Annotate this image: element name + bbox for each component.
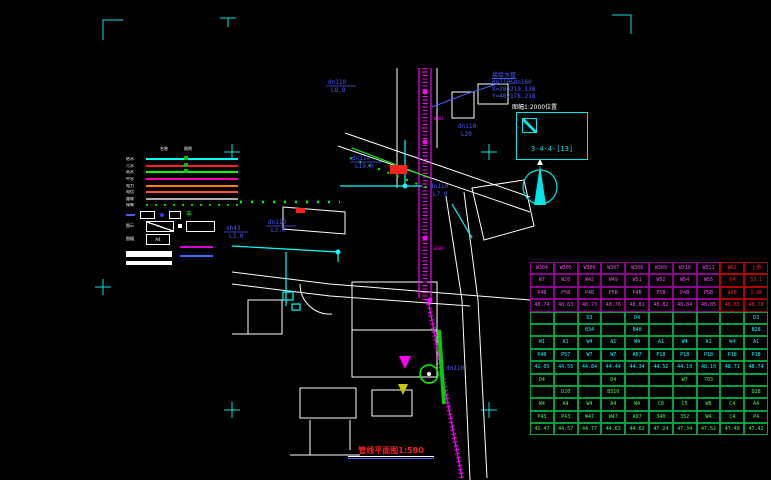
table-cell: 47.24 xyxy=(649,423,673,435)
table-cell: 703 xyxy=(697,374,721,386)
svg-text:W308: W308 xyxy=(434,246,444,251)
table-cell: W310 xyxy=(673,262,697,274)
parcel-outlines[interactable] xyxy=(232,84,534,455)
legend-line-blip xyxy=(184,156,188,160)
table-cell: P18 xyxy=(697,349,721,361)
table-cell: W4 xyxy=(673,336,697,348)
legend-row: 电信 xyxy=(126,189,246,196)
diag-label: 图示 xyxy=(126,223,142,229)
pipe-label: L20 xyxy=(461,131,472,138)
table-cell: W309 xyxy=(649,262,673,274)
legend-row-line[interactable] xyxy=(146,204,238,206)
legend-row: 雨水 xyxy=(126,169,246,176)
table-cell: W307 xyxy=(601,262,625,274)
table-cell: 41.47 xyxy=(530,423,554,435)
y-coordinate: Y=482178.218 xyxy=(492,93,535,100)
table-cell xyxy=(649,324,673,336)
table-cell: 48.84 xyxy=(673,299,697,311)
table-cell: 48.73 xyxy=(578,299,602,311)
table-cell: A1 xyxy=(601,336,625,348)
table-block: W304W305W306W307W308W309W310W311W62上游W7W… xyxy=(530,262,768,312)
table-cell: 48.74 xyxy=(744,361,768,373)
table-cell: P43 xyxy=(554,411,578,423)
pipe-label: L3.0 xyxy=(271,227,286,234)
legend-extra-lines xyxy=(180,246,213,257)
table-cell: W8 xyxy=(697,398,721,410)
table-cell: 48.10 xyxy=(697,361,721,373)
table-cell: D4 xyxy=(625,312,649,324)
table-cell: W305 xyxy=(554,262,578,274)
table-cell: D3 xyxy=(744,312,768,324)
table-cell: W4 xyxy=(625,336,649,348)
table-cell: W54 xyxy=(673,274,697,286)
table-cell: 44.34 xyxy=(625,361,649,373)
legend-row: 绿篱 xyxy=(126,202,246,209)
table-cell: 48.78 xyxy=(744,299,768,311)
a4-label: 图幅 xyxy=(126,236,142,242)
table-cell: 41.05 xyxy=(530,361,554,373)
table-cell: 47.52 xyxy=(697,423,721,435)
table-cell: 352 xyxy=(673,411,697,423)
table-cell xyxy=(601,312,625,324)
table-cell xyxy=(720,386,744,398)
table-cell: P5B xyxy=(697,287,721,299)
table-cell xyxy=(554,374,578,386)
legend-row-line[interactable] xyxy=(146,171,238,173)
table-cell: W304 xyxy=(530,262,554,274)
table-cell xyxy=(697,324,721,336)
coordinate-annotation: 接给水管 dn110&dn160 X=286219.138 Y=482178.2… xyxy=(492,72,535,100)
table-cell xyxy=(697,312,721,324)
red-marker-small[interactable] xyxy=(296,208,305,213)
pipe-label: dn110 xyxy=(268,219,286,226)
chamber-symbol[interactable] xyxy=(169,211,181,219)
table-cell xyxy=(720,324,744,336)
table-cell: W55 xyxy=(697,274,721,286)
table-cell xyxy=(554,324,578,336)
table-cell: 44.44 xyxy=(601,361,625,373)
table-cell xyxy=(530,312,554,324)
table-cell: W4 xyxy=(578,336,602,348)
table-cell: A07 xyxy=(625,411,649,423)
sheet-locator-box[interactable]: 3-4-4-[13] xyxy=(516,112,588,160)
table-cell: W7 xyxy=(578,349,602,361)
table-cell: B28 xyxy=(744,324,768,336)
table-cell xyxy=(697,386,721,398)
magenta-line-sample xyxy=(180,246,213,248)
pipe-label: dn110 xyxy=(446,365,464,372)
table-cell: W47 xyxy=(578,411,602,423)
legend-row: 污水 xyxy=(126,163,246,170)
empty-box-symbol[interactable] xyxy=(186,221,215,232)
table-cell xyxy=(649,312,673,324)
legend-row: 中水 xyxy=(126,176,246,183)
table-cell: 44.63 xyxy=(601,423,625,435)
table-cell: W306 xyxy=(578,262,602,274)
table-cell: W4 xyxy=(578,398,602,410)
table-cell: 上游 xyxy=(744,262,768,274)
table-cell: 48.65 xyxy=(720,299,744,311)
table-cell: W4 xyxy=(697,411,721,423)
pipe-label: dn110 xyxy=(458,123,476,130)
table-cell: P4B xyxy=(578,287,602,299)
table-cell xyxy=(554,312,578,324)
table-cell: 44.55 xyxy=(554,361,578,373)
table-cell: A1 xyxy=(554,336,578,348)
table-cell: P18 xyxy=(649,349,673,361)
table-cell: 44.10 xyxy=(673,361,697,373)
table-cell: P4B xyxy=(673,287,697,299)
table-cell: A1 xyxy=(697,336,721,348)
table-cell: W42 xyxy=(578,274,602,286)
pipe-dimension-labels: dn110 L8.0 dn110 L19.0 dn110 L3.0 sh43 L… xyxy=(224,79,476,372)
table-cell xyxy=(720,312,744,324)
table-cell: 48.85 xyxy=(697,299,721,311)
valve-symbol[interactable] xyxy=(126,214,135,216)
table-cell: 47.49 xyxy=(720,423,744,435)
table-cell xyxy=(601,324,625,336)
diagonal-box-symbol[interactable] xyxy=(146,221,174,232)
title-underline-1 xyxy=(348,456,434,457)
legend-rows: 给水污水雨水中水电力电信路缘绿篱 xyxy=(126,156,246,209)
table-cell: A4 xyxy=(744,398,768,410)
legend-row-label: 中水 xyxy=(126,177,146,181)
table-cell: D28 xyxy=(744,386,768,398)
legend-row-line[interactable] xyxy=(146,198,238,200)
table-cell: A1 xyxy=(649,336,673,348)
table-cell: W311 xyxy=(697,262,721,274)
legend-row-label: 雨水 xyxy=(126,170,146,174)
table-cell: A88 xyxy=(720,287,744,299)
table-cell: 47.34 xyxy=(673,423,697,435)
table-cell xyxy=(673,386,697,398)
red-marker-box[interactable] xyxy=(390,165,407,174)
title-block: 管线平面图1:500 xyxy=(348,446,434,459)
table-cell: P5B xyxy=(554,287,578,299)
table-cell: 340 xyxy=(649,411,673,423)
table-cell: 44.77 xyxy=(578,423,602,435)
table-cell: C8 xyxy=(649,398,673,410)
legend-col1-header: 名称 xyxy=(160,146,168,152)
legend-row-label: 路缘 xyxy=(126,197,146,201)
legend-row-line[interactable] xyxy=(146,165,238,167)
table-cell: C4 xyxy=(720,398,744,410)
table-cell: D4 xyxy=(601,374,625,386)
table-cell: A4 xyxy=(554,398,578,410)
tree-symbol: 丰 xyxy=(186,212,192,218)
legend-row-label: 绿篱 xyxy=(126,203,146,207)
legend-col2-header: 图例 xyxy=(184,146,192,152)
connect-note: 接给水管 xyxy=(492,72,535,79)
road-outlines[interactable] xyxy=(232,68,530,480)
table-cell: W20 xyxy=(554,274,578,286)
table-cell: P57 xyxy=(554,349,578,361)
table-cell xyxy=(625,386,649,398)
table-cell: 48.82 xyxy=(649,299,673,311)
table-cell: P5B xyxy=(601,287,625,299)
table-cell: P18 xyxy=(744,349,768,361)
drawing-title: 管线平面图1:500 xyxy=(348,446,434,455)
hydrant-symbol[interactable] xyxy=(160,213,164,217)
table-cell: W52 xyxy=(649,274,673,286)
table-cell: D20 xyxy=(554,386,578,398)
a4-frame-symbol[interactable]: A4 xyxy=(146,234,170,245)
table-cell: P4B xyxy=(530,287,554,299)
table-cell: B34 xyxy=(578,324,602,336)
table-block: D3D4D3B34B48B28W1A1W4A1W4A1W4A1W4A1P48P5… xyxy=(530,312,768,436)
table-cell xyxy=(744,374,768,386)
table-cell: A07 xyxy=(625,349,649,361)
legend-row-line[interactable] xyxy=(146,178,238,180)
table-cell: W51 xyxy=(625,274,649,286)
table-cell: 48.63 xyxy=(554,299,578,311)
table-cell xyxy=(625,374,649,386)
table-cell: 53.1 xyxy=(744,274,768,286)
sheet-locator-label: 图幅1:2000位置 xyxy=(512,102,557,111)
pipe-label: dn110 xyxy=(352,155,370,162)
table-cell: 44.57 xyxy=(554,423,578,435)
table-cell: B310 xyxy=(601,386,625,398)
table-cell: 47.42 xyxy=(744,423,768,435)
table-cell: W1 xyxy=(530,336,554,348)
table-cell xyxy=(649,386,673,398)
table-cell: W4 xyxy=(625,398,649,410)
table-cell xyxy=(578,386,602,398)
pipe-label: dn110 xyxy=(430,183,448,190)
table-cell: P18 xyxy=(673,349,697,361)
table-cell: C4 xyxy=(720,411,744,423)
legend-row: 路缘 xyxy=(126,196,246,203)
table-cell: W4 xyxy=(530,398,554,410)
table-cell xyxy=(530,324,554,336)
legend-a4-row: 图幅 A4 xyxy=(126,233,246,246)
pipe-label: L7.0 xyxy=(433,191,448,198)
sewer-flag-symbol xyxy=(399,356,411,369)
title-underline-2 xyxy=(348,458,434,459)
legend-row-line[interactable] xyxy=(146,158,238,160)
table-cell: P43 xyxy=(530,411,554,423)
table-cell: W7 xyxy=(601,349,625,361)
table-cell: W7 xyxy=(673,374,697,386)
x-coordinate: X=286219.138 xyxy=(492,86,535,93)
legend-row-line[interactable] xyxy=(146,191,238,193)
legend-line-blip xyxy=(184,169,188,173)
table-cell: 44.62 xyxy=(625,423,649,435)
table-cell xyxy=(673,324,697,336)
table-cell: C5 xyxy=(673,398,697,410)
table-cell: P4B xyxy=(625,287,649,299)
table-cell: 44.84 xyxy=(578,361,602,373)
table-cell xyxy=(530,386,554,398)
white-bar-symbol-2 xyxy=(126,261,172,265)
table-cell: 48.74 xyxy=(530,299,554,311)
legend-symbols-row: 丰 xyxy=(126,211,246,220)
table-cell: W308 xyxy=(625,262,649,274)
table-cell: P18 xyxy=(720,349,744,361)
legend-row: 电力 xyxy=(126,182,246,189)
table-cell: P5B xyxy=(649,287,673,299)
pipe-label: L8.0 xyxy=(331,87,346,94)
table-cell xyxy=(578,374,602,386)
legend-line-blip xyxy=(184,163,188,167)
table-cell xyxy=(673,312,697,324)
meter-box-symbol[interactable] xyxy=(140,211,155,219)
legend-row-label: 给水 xyxy=(126,157,146,161)
sheet-code: 3-4-4-[13] xyxy=(517,145,587,153)
table-cell: W47 xyxy=(601,411,625,423)
legend-diagonal-row: 图示 xyxy=(126,220,246,233)
pipe-label: dn110 xyxy=(328,79,346,86)
table-cell: 3.98 xyxy=(744,287,768,299)
table-cell xyxy=(720,374,744,386)
table-cell: W49 xyxy=(601,274,625,286)
table-cell: 48.76 xyxy=(601,299,625,311)
legend-row-line[interactable] xyxy=(146,185,238,187)
table-cell: D4 xyxy=(530,374,554,386)
table-cell: 44.52 xyxy=(649,361,673,373)
table-cell: A1 xyxy=(744,336,768,348)
svg-text:W304: W304 xyxy=(434,116,444,121)
sheet-hatch-square xyxy=(522,118,537,133)
table-cell: 48.71 xyxy=(720,361,744,373)
table-cell: P48 xyxy=(530,349,554,361)
legend-row-label: 电力 xyxy=(126,184,146,188)
mini-square-symbol xyxy=(178,224,182,228)
table-cell: W62 xyxy=(720,262,744,274)
legend-row-label: 电信 xyxy=(126,190,146,194)
table-cell: P4 xyxy=(744,411,768,423)
table-cell: 64 xyxy=(720,274,744,286)
table-cell xyxy=(649,374,673,386)
pipe-schedule-table[interactable]: W304W305W306W307W308W309W310W311W62上游W7W… xyxy=(530,262,768,435)
pipe-size-note: dn110&dn160 xyxy=(492,79,535,86)
legend-row-label: 污水 xyxy=(126,164,146,168)
legend-row: 给水 xyxy=(126,156,246,163)
pipe-label: L19.0 xyxy=(355,163,373,170)
table-cell: W4 xyxy=(720,336,744,348)
table-cell: B48 xyxy=(625,324,649,336)
cad-viewport: dn110 L8.0 dn110 L19.0 dn110 L3.0 sh43 L… xyxy=(0,0,771,480)
table-cell: D3 xyxy=(578,312,602,324)
table-cell: W7 xyxy=(530,274,554,286)
table-cell: A4 xyxy=(601,398,625,410)
table-cell: 48.81 xyxy=(625,299,649,311)
white-bar-symbol-1 xyxy=(126,251,172,257)
blue-line-sample xyxy=(180,255,213,257)
